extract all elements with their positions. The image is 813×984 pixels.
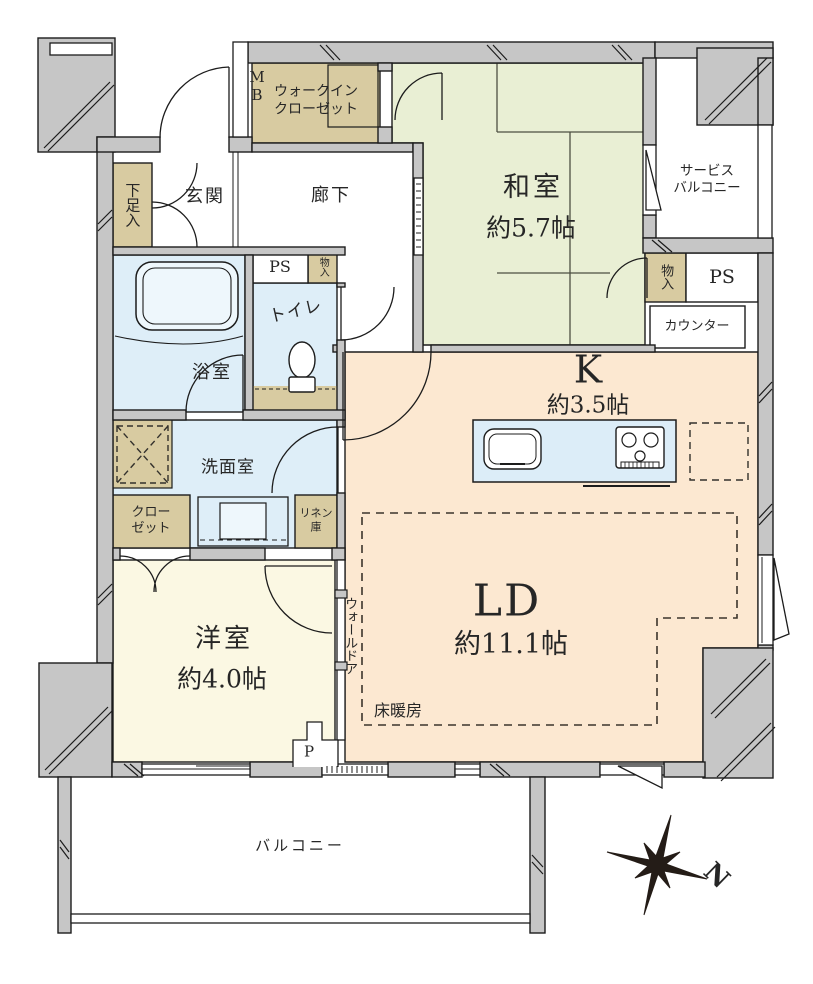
floor-plan-drawing xyxy=(0,0,813,984)
room-label-yokushitsu: 浴室 xyxy=(192,362,232,385)
label-linen: リネン庫 xyxy=(300,506,333,534)
wall-column-bottomleft xyxy=(39,663,112,777)
room-fills xyxy=(113,63,758,762)
washer-space xyxy=(113,420,172,488)
window-ld-right xyxy=(758,555,773,645)
entrance-door-swing xyxy=(160,67,229,138)
room-size-ld: 約11.1帖 xyxy=(454,628,568,662)
balcony-wall-left xyxy=(58,777,71,933)
room-label-ld: LD xyxy=(473,574,542,629)
stove-icon xyxy=(616,427,664,468)
room-label-service-balcony: サービスバルコニー xyxy=(673,163,740,197)
wall-column-bottomright xyxy=(703,648,773,778)
label-wall-door: ウォールドア xyxy=(341,597,357,675)
service-balcony-rail xyxy=(758,125,772,238)
toilet-icon xyxy=(289,342,315,378)
room-label-washitsu: 和室 xyxy=(503,171,563,205)
room-size-washitsu: 約5.7帖 xyxy=(486,212,576,243)
room-label-senmen: 洗面室 xyxy=(201,457,255,478)
room-label-kitchen: K xyxy=(574,346,602,394)
label-meter-box: MB xyxy=(249,68,264,104)
label-storage-hall: 物入 xyxy=(316,257,329,277)
floor-plan: 和室 約5.7帖 LD 約11.1帖 K 約3.5帖 洋室 約4.0帖 玄関 廊… xyxy=(0,0,813,984)
ld-bottom-door-leaf xyxy=(618,766,662,788)
label-pipe-space-hall: PS xyxy=(269,257,291,277)
compass-icon xyxy=(607,815,707,915)
room-label-genkan: 玄関 xyxy=(185,186,225,209)
label-pipe: P xyxy=(304,743,314,762)
ld-right-window-leaf xyxy=(774,558,789,640)
label-storage-east: 物入 xyxy=(657,264,673,290)
bathtub-icon xyxy=(136,262,238,330)
room-label-balcony: バルコニー xyxy=(255,837,345,856)
room-label-walkin-closet: ウォークインクローゼット xyxy=(274,84,358,119)
room-size-kitchen: 約3.5帖 xyxy=(547,392,630,421)
label-shoe-cabinet: 下足入 xyxy=(123,183,142,228)
room-label-rouka: 廊下 xyxy=(311,185,351,208)
western-room-floor xyxy=(113,560,335,762)
label-counter: カウンター xyxy=(664,319,729,335)
balcony-rail xyxy=(71,914,530,923)
window-topleft xyxy=(50,43,112,55)
room-size-yoshitsu: 約4.0帖 xyxy=(177,663,267,694)
label-closet: クローゼット xyxy=(131,505,170,538)
label-floor-heating: 床暖房 xyxy=(374,701,422,721)
sliding-door-washitsu xyxy=(414,178,423,255)
label-pipe-space-east: PS xyxy=(709,266,735,290)
meter-box-channel xyxy=(233,42,248,137)
toilet-door-swing xyxy=(341,287,394,340)
room-label-yoshitsu: 洋室 xyxy=(195,623,253,656)
